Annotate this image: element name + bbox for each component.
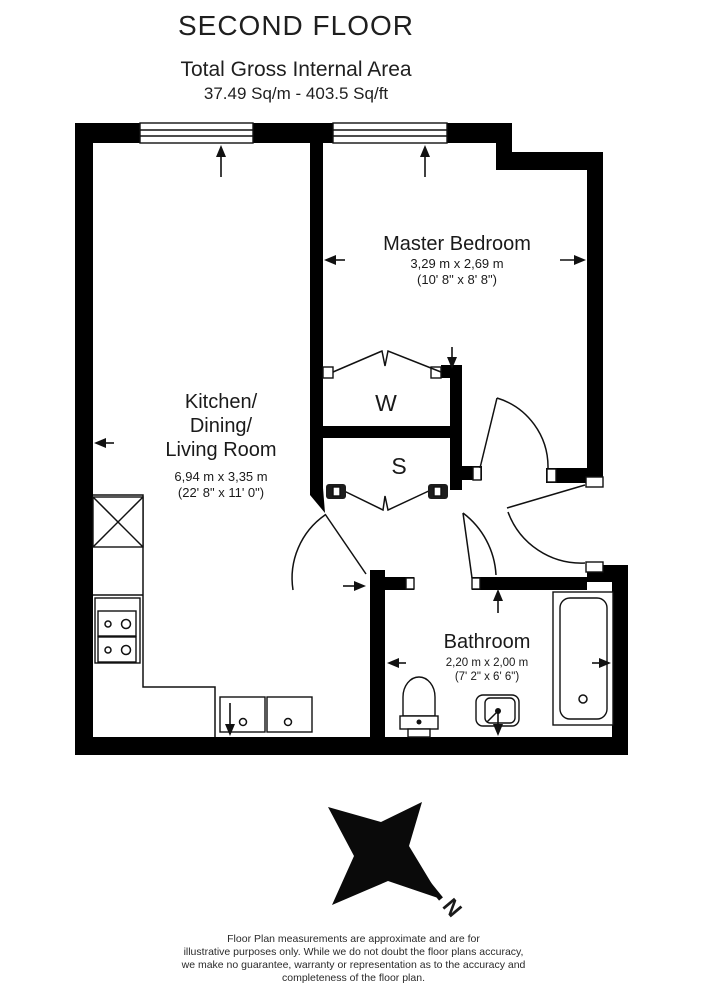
entry-door-post-bottom <box>586 562 603 572</box>
hob-icon <box>95 598 140 663</box>
top-wall-b <box>253 123 333 143</box>
bedroom-door-post-right <box>547 469 556 482</box>
bathtub-icon <box>553 592 613 725</box>
master-bedroom-imperial: (10' 8" x 8' 8") <box>417 272 497 287</box>
bedroom-window-arrow-up <box>420 145 430 177</box>
kitchen-window <box>140 123 253 143</box>
divider-diagonal-end <box>310 488 325 513</box>
wardrobe-storage-divider <box>310 426 462 438</box>
bathroom-metric: 2,20 m x 2,00 m <box>446 657 528 669</box>
entry-door-post-top <box>586 477 603 487</box>
storage-bifold-door <box>326 484 448 510</box>
bathroom-door-post-left <box>406 578 414 589</box>
kitchen-label-line2: Dining/ <box>190 415 253 437</box>
storage-right-wall <box>450 438 462 490</box>
disclaimer-line3: we make no guarantee, warranty or repres… <box>0 959 707 972</box>
bathroom-imperial: (7' 2" x 6' 6") <box>455 671 519 683</box>
wardrobe-label: W <box>375 390 397 416</box>
bathroom-label: Bathroom <box>444 631 531 653</box>
compass-star-icon <box>328 802 441 905</box>
room-labels: Master Bedroom 3,29 m x 2,69 m (10' 8" x… <box>165 233 531 683</box>
disclaimer-line4: completeness of the floor plan. <box>0 972 707 985</box>
disclaimer-line2: illustrative purposes only. While we do … <box>0 946 707 959</box>
disclaimer-line1: Floor Plan measurements are approximate … <box>0 933 707 946</box>
bedroom-arrow-left <box>324 255 345 265</box>
bedroom-window <box>333 123 447 143</box>
top-right-step <box>496 152 603 170</box>
kitchen-unit-icon <box>93 497 143 595</box>
master-bedroom-label: Master Bedroom <box>383 233 531 255</box>
kitchen-door <box>292 514 366 590</box>
wardrobe-bifold-door <box>333 351 441 372</box>
doors <box>292 351 585 590</box>
left-wall <box>75 123 93 755</box>
bottom-wall <box>75 737 628 755</box>
bathroom-left-wall <box>370 570 385 737</box>
disclaimer: Floor Plan measurements are approximate … <box>0 933 707 985</box>
kitchen-window-arrow-up <box>216 145 226 177</box>
bathroom-top-wall-b <box>472 577 587 590</box>
kitchen-arrow-left <box>94 438 114 448</box>
master-bedroom-metric: 3,29 m x 2,69 m <box>410 256 503 271</box>
kitchen-metric: 6,94 m x 3,35 m <box>174 469 267 484</box>
kitchen-label-line3: Living Room <box>165 439 276 461</box>
right-wall-lower <box>612 565 628 755</box>
entry-door <box>507 485 585 563</box>
bathroom-door-post-right <box>472 578 480 589</box>
kitchen-label-line1: Kitchen/ <box>185 391 258 413</box>
bedroom-door-post-left <box>473 467 481 480</box>
right-wall-upper <box>587 152 603 483</box>
floor-plan-page: SECOND FLOOR Total Gross Internal Area 3… <box>0 0 707 1000</box>
compass-rose: N <box>328 802 467 922</box>
outer-walls <box>75 123 628 755</box>
bathroom-arrow-up <box>493 589 503 613</box>
top-wall-a <box>75 123 140 143</box>
storage-label: S <box>391 453 406 479</box>
kitchen-bedroom-divider <box>310 143 323 492</box>
floor-plan-drawing: Master Bedroom 3,29 m x 2,69 m (10' 8" x… <box>0 0 707 1000</box>
bathroom-door <box>463 513 496 578</box>
kitchen-imperial: (22' 8" x 11' 0") <box>178 485 264 500</box>
kitchen-fixtures <box>93 495 312 737</box>
wardrobe-door-post-left <box>323 367 333 378</box>
bedroom-door <box>480 398 548 468</box>
bedroom-arrow-right <box>560 255 586 265</box>
kitchen-arrow-right <box>343 581 366 591</box>
toilet-icon <box>400 677 438 737</box>
bathroom-arrow-left <box>387 658 406 668</box>
